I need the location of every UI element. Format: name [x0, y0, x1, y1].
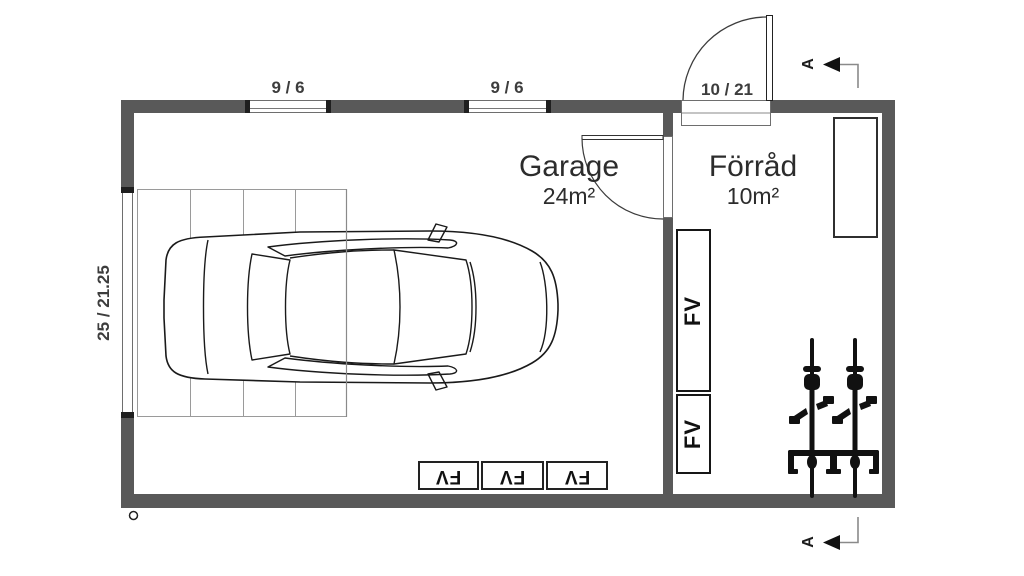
- fv-floor-unit-2: FV: [481, 461, 544, 490]
- garage-door-panel: [137, 189, 347, 417]
- wall-left-upper: [121, 100, 134, 187]
- window-left: [245, 100, 331, 113]
- garage-door-cap-top: [121, 187, 134, 193]
- window-right-cap-a: [464, 100, 469, 113]
- wall-top-segment-1: [121, 100, 245, 113]
- window-right-dimension-label: 9 / 6: [467, 78, 547, 98]
- interior-wall-stub: [663, 113, 673, 138]
- interior-door-leaf: [582, 136, 663, 140]
- fv-cabinet-tall-label: FV: [681, 295, 707, 325]
- window-left-cap-b: [326, 100, 331, 113]
- fv-floor-unit-3: FV: [546, 461, 608, 490]
- window-right-cap-b: [546, 100, 551, 113]
- bicycle-icon: [788, 338, 836, 498]
- garage-room-label: Garage: [494, 150, 644, 184]
- fv-floor-unit-3-label: FV: [564, 465, 590, 487]
- window-left-cap-a: [245, 100, 250, 113]
- fv-cabinet-tall: FV: [676, 229, 711, 392]
- garage-door-cap-bottom: [121, 412, 134, 418]
- storage-shelf: [833, 117, 878, 238]
- wall-left-lower: [121, 418, 134, 494]
- entry-door-leaf: [766, 15, 773, 101]
- garage-door-panel-divider: [190, 190, 191, 416]
- window-glass-line: [246, 108, 330, 109]
- fv-cabinet-short: FV: [676, 394, 711, 474]
- window-glass-line: [465, 108, 550, 109]
- section-arrow-icon: [823, 57, 858, 88]
- fv-floor-unit-2-label: FV: [499, 465, 525, 487]
- window-left-dimension-label: 9 / 6: [248, 78, 328, 98]
- entry-door-dimension-label: 10 / 21: [687, 80, 767, 100]
- wall-right: [882, 100, 895, 494]
- storage-room-label: Förråd: [678, 150, 828, 184]
- fv-floor-unit-1-label: FV: [435, 465, 461, 487]
- section-marker-a-top: A: [800, 55, 818, 73]
- garage-door-band: [122, 187, 133, 418]
- garage-door-panel-divider: [295, 190, 296, 416]
- garage-area-label: 24m²: [494, 183, 644, 210]
- interior-door-opening: [663, 136, 673, 218]
- interior-wall-main: [663, 218, 673, 494]
- wall-top-segment-4: [771, 100, 895, 113]
- storage-area-label: 10m²: [678, 183, 828, 210]
- entry-door-threshold: [681, 100, 771, 126]
- garage-door-dimension-label: 25 / 21.25: [94, 228, 114, 378]
- bicycle-icon: [831, 338, 879, 498]
- wall-top-segment-3: [551, 100, 681, 113]
- section-marker-a-bottom: A: [800, 533, 818, 551]
- wall-top-segment-2: [331, 100, 464, 113]
- section-arrow-icon: [823, 517, 858, 550]
- garage-door-panel-divider: [243, 190, 244, 416]
- fv-cabinet-short-label: FV: [681, 419, 707, 449]
- wall-bottom: [121, 494, 895, 508]
- fv-floor-unit-1: FV: [418, 461, 479, 490]
- floor-plan-canvas: FV FV FV FV FV 9 / 6 9 / 6 10 / 21 25 / …: [0, 0, 1024, 576]
- drain-marker-icon: [130, 512, 138, 520]
- window-right: [464, 100, 551, 113]
